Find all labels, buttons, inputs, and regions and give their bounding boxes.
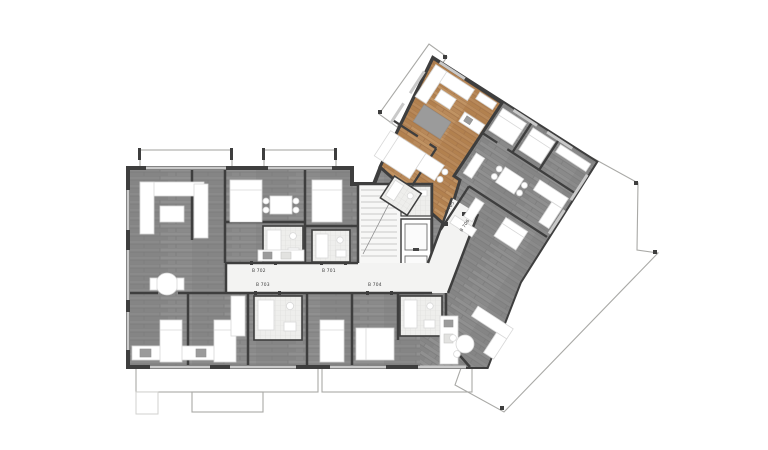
bathroom (400, 296, 442, 336)
bathroom (312, 230, 350, 262)
bathroom (254, 296, 302, 340)
unit-label-b702: B 702 (252, 268, 266, 274)
balcony-bottom-1 (136, 366, 318, 392)
balcony-bottom-2 (322, 366, 472, 392)
bed (320, 320, 344, 362)
balcony-top-left-1 (138, 148, 233, 169)
bed (356, 328, 394, 360)
unit-label-b703: B 703 (256, 282, 270, 288)
wardrobe (194, 184, 208, 238)
bed (230, 180, 262, 222)
wardrobe (231, 296, 245, 336)
unit-label-b701: B 701 (322, 268, 336, 274)
balcony-top-left-2 (262, 148, 337, 169)
unit-label-b704: B 704 (368, 282, 382, 288)
bed (312, 180, 342, 222)
kitchen-counter (258, 250, 304, 261)
floor-plan: B 702 B 701 B 703 B 704 B 705 B 706 (0, 0, 768, 450)
bed (160, 320, 182, 362)
floor-plan-canvas: B 702 B 701 B 703 B 704 B 705 B 706 (0, 0, 768, 450)
balcony-bottom-step (136, 392, 263, 414)
